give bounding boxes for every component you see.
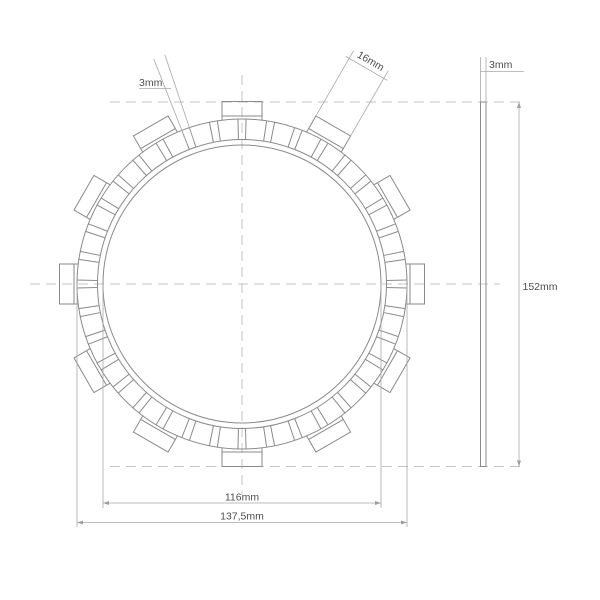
centerlines	[30, 75, 500, 495]
clutch-plate-technical-drawing: 3mm16mm3mm152mm116mm137,5mm	[0, 0, 600, 600]
dimension-thickness: 3mm	[481, 57, 525, 102]
dimension-tab-width: 16mm	[316, 49, 388, 136]
overall-height-label: 152mm	[523, 281, 558, 293]
drawing-canvas: 3mm16mm3mm152mm116mm137,5mm	[0, 0, 600, 600]
slot-width-label: 3mm	[139, 77, 163, 89]
dimension-overall-height: 152mm	[517, 102, 558, 467]
thickness-label: 3mm	[489, 59, 513, 71]
dimension-slot-width: 3mm	[139, 55, 194, 145]
inner-diameter-label: 116mm	[225, 492, 259, 504]
outer-diameter-label: 137,5mm	[220, 511, 264, 523]
